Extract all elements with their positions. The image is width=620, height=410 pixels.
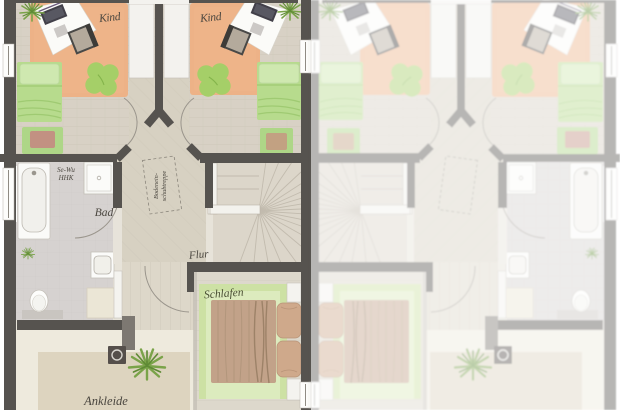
svg-text:Se-Wu: Se-Wu: [57, 166, 75, 174]
svg-text:Bad: Bad: [95, 207, 114, 219]
svg-text:schubtreppe: schubtreppe: [161, 171, 168, 202]
svg-text:Flur: Flur: [187, 248, 209, 262]
svg-text:Kind: Kind: [98, 11, 122, 25]
svg-text:HHK: HHK: [58, 174, 74, 182]
svg-text:Bodenein-: Bodenein-: [153, 173, 160, 199]
svg-text:Kind: Kind: [199, 11, 223, 25]
svg-text:Ankleide: Ankleide: [83, 394, 128, 408]
